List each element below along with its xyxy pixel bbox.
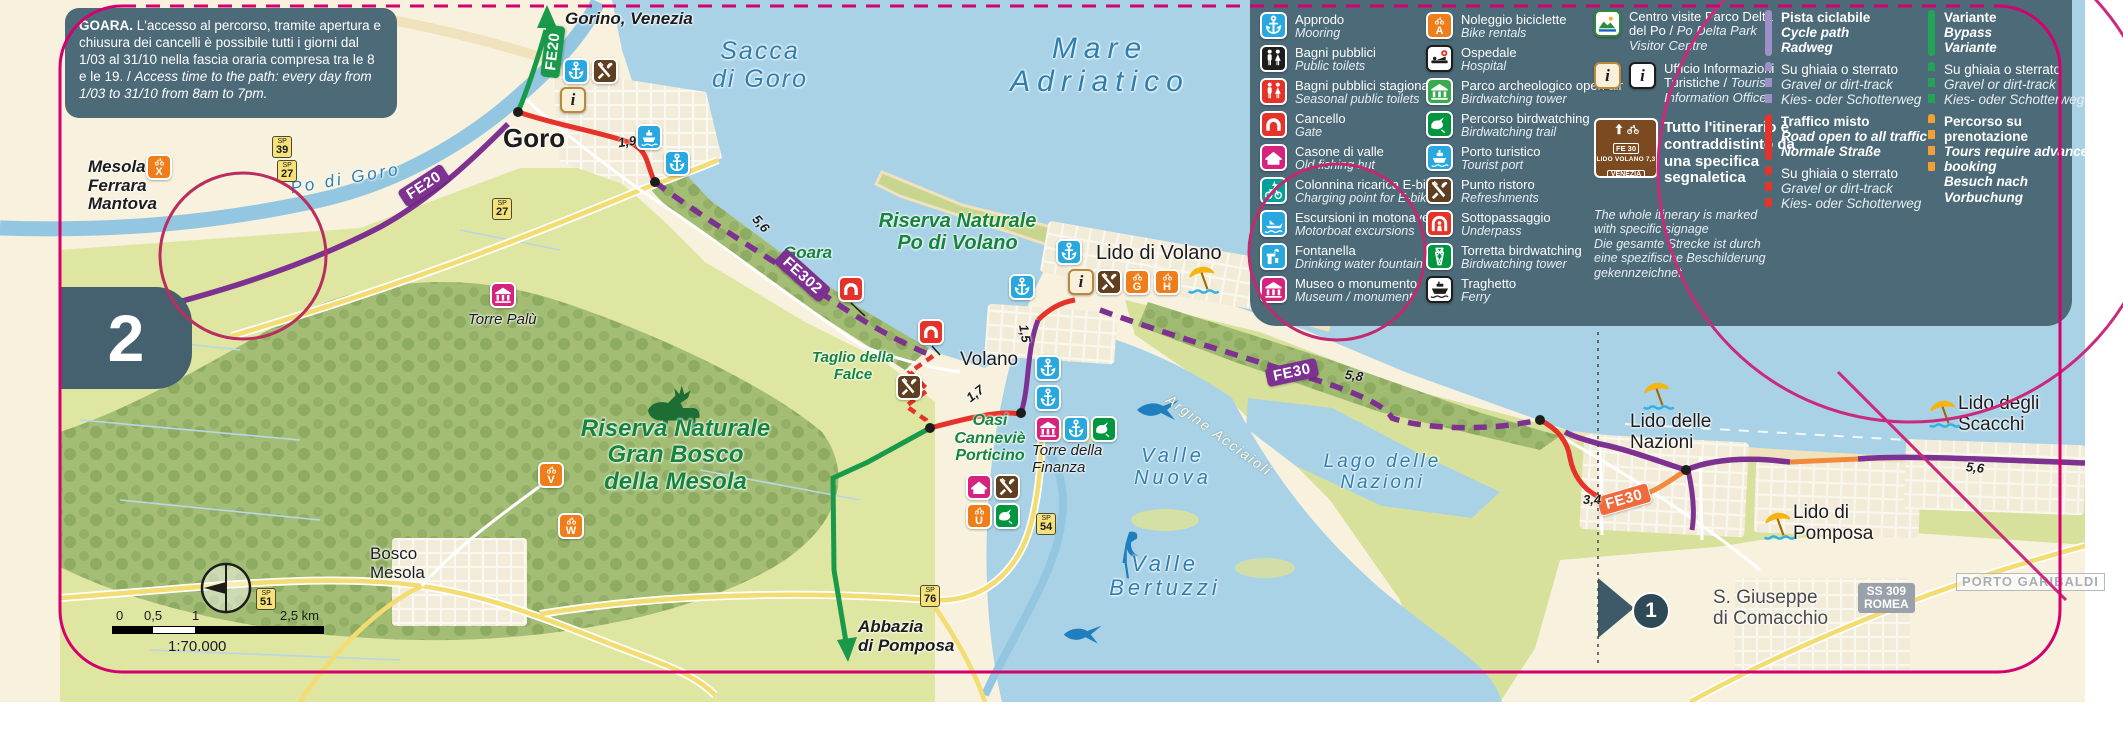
scale-tick: 0,5 xyxy=(144,608,162,623)
road-badge-sp76: SP76 xyxy=(920,585,940,607)
info-icon: i xyxy=(1629,62,1656,89)
road-badge-sp27b: SP27 xyxy=(277,160,297,182)
legend-route-mixed-traffic: Traffico mistoRoad open to all trafficNo… xyxy=(1781,114,1933,159)
bike-marker-g-icon: G xyxy=(1124,269,1150,295)
mooring-icon xyxy=(664,150,690,176)
road-badge-sp39: SP39 xyxy=(272,136,292,158)
label-s-giuseppe: S. Giuseppe di Comacchio xyxy=(1713,588,1828,630)
label-oasi-cannevie: Oasi Canneviè Porticino xyxy=(950,412,1030,465)
label-volano: Volano xyxy=(960,350,1018,371)
toilets-icon xyxy=(1260,78,1287,105)
gate-icon xyxy=(918,319,944,345)
mooring-icon xyxy=(1056,239,1082,265)
legend-item-visitor-centre: Centro visite Parco Delta del Po / Po De… xyxy=(1594,10,1787,53)
legend-route-booking: Percorso su prenotazioneTours require ad… xyxy=(1944,114,2096,205)
label-riserva-gran-bosco: Riserva Naturale Gran Bosco della Mesola xyxy=(578,416,773,495)
museum-icon xyxy=(1260,276,1287,303)
road-badge-sp54: SP54 xyxy=(1036,513,1056,535)
mooring-icon xyxy=(1063,416,1089,442)
mooring-icon xyxy=(563,58,589,84)
legend-item-motonave: Escursioni in motonaveMotorboat excursio… xyxy=(1260,210,1429,238)
distance-label: 1,5 xyxy=(1016,323,1034,343)
itinerary-sign: FE 30 LIDO VOLANO 7,3 VENEZIA xyxy=(1594,118,1658,178)
bike-marker-h-icon: H xyxy=(1154,269,1180,295)
route-swatch-gravel-purple xyxy=(1765,62,1772,106)
scale-tick: 2,5 km xyxy=(280,608,319,623)
map-page: Gorino, Venezia Goro Mesola Ferrara Mant… xyxy=(0,0,2123,737)
road-badge-ss309: SS 309 ROMEA xyxy=(1858,583,1915,613)
toilets-icon xyxy=(1260,45,1287,72)
museum-icon xyxy=(490,282,516,308)
road-badge-sp51: SP51 xyxy=(256,588,276,610)
label-torre-palu: Torre Palù xyxy=(468,312,537,329)
label-porto-garibaldi: PORTO GARIBALDI xyxy=(1956,573,2105,591)
legend-route-gravel-green: Su ghiaia o sterratoGravel or dirt-track… xyxy=(1944,62,2096,107)
refreshments-icon xyxy=(896,374,922,400)
arrow-up-icon xyxy=(1612,122,1626,136)
motorboat-icon xyxy=(1260,210,1287,237)
legend-route-cycle-path: Pista ciclabileCycle pathRadweg xyxy=(1781,10,1933,55)
legend-item-casone: Casone di valleOld fishing hut xyxy=(1260,144,1384,172)
label-lido-di-pomposa: Lido di Pomposa xyxy=(1793,503,1873,545)
fountain-icon xyxy=(1260,243,1287,270)
route-swatch-gravel-green xyxy=(1928,62,1935,106)
ebike-icon xyxy=(1260,177,1287,204)
refreshments-icon xyxy=(592,58,618,84)
legend-item-fontanella: FontanellaDrinking water fountain xyxy=(1260,243,1423,271)
scale-tick: 1 xyxy=(192,608,199,623)
label-riserva-po-di-volano: Riserva Naturale Po di Volano xyxy=(850,210,1065,254)
label-lido-degli-scacchi: Lido degli Scacchi xyxy=(1958,394,2039,436)
info-box-goara: GOARA. L'accesso al percorso, tramite ap… xyxy=(65,8,397,118)
label-torre-della-finanza: Torre della Finanza xyxy=(1032,443,1102,476)
legend-item-percorso-birdwatching: Percorso birdwatchingBirdwatching trail xyxy=(1426,111,1590,139)
refreshments-icon xyxy=(994,474,1020,500)
label-abbazia-di-pomposa: Abbazia di Pomposa xyxy=(858,618,954,655)
distance-label: 5,6 xyxy=(1965,459,1985,476)
road-badge-sp27: SP27 xyxy=(492,198,512,220)
bike-marker-x-icon: X xyxy=(146,154,172,180)
label-valle-nuova: Valle Nuova xyxy=(1128,445,1218,489)
bike-marker-w-icon: W xyxy=(558,513,584,539)
stage-marker-1: 1 xyxy=(1632,592,1670,630)
scale-tick: 0 xyxy=(116,608,123,623)
hospital-icon xyxy=(1426,45,1453,72)
label-mare-adriatico: Mare Adriatico xyxy=(975,32,1225,98)
fishing-hut-icon xyxy=(966,474,992,500)
scale-ratio: 1:70.000 xyxy=(168,638,352,655)
gate-icon xyxy=(838,276,864,302)
scale-bar: 0 0,5 1 2,5 km 1:70.000 xyxy=(112,608,352,655)
scale-bar-rule xyxy=(112,626,324,634)
label-gorino-venezia: Gorino, Venezia xyxy=(565,10,693,29)
sign-destination: VENEZIA xyxy=(1607,170,1645,178)
cutlery-icon xyxy=(1426,177,1453,204)
legend-item-noleggio: A Noleggio bicicletteBike rentals xyxy=(1426,12,1567,40)
birdwatching-icon xyxy=(994,503,1020,529)
visitor-centre-icon xyxy=(1594,10,1621,37)
legend-item-bagni-pubblici: Bagni pubbliciPublic toilets xyxy=(1260,45,1376,73)
legend-route-variant: VarianteBypassVariante xyxy=(1944,10,2096,55)
mooring-icon xyxy=(1035,355,1061,381)
label-bosco-mesola: Bosco Mesola xyxy=(370,545,425,582)
beach-umbrella-icon xyxy=(1185,260,1221,296)
sign-route-number: FE 30 xyxy=(1613,143,1639,154)
panel-arrow-icon xyxy=(1598,578,1634,638)
legend-item-traghetto: TraghettoFerry xyxy=(1426,276,1516,304)
bike-rental-icon: A xyxy=(1426,12,1453,39)
hut-icon xyxy=(1260,144,1287,171)
mooring-icon xyxy=(1035,385,1061,411)
legend-item-approdo: ApprodoMooring xyxy=(1260,12,1344,40)
info-icon: i xyxy=(560,87,586,113)
compass-icon xyxy=(202,564,250,612)
info-icon: i xyxy=(1594,62,1621,89)
label-valle-bertuzzi: Valle Bertuzzi xyxy=(1085,552,1245,600)
legend-panel: ApprodoMooring Bagni pubbliciPublic toil… xyxy=(1250,0,2072,326)
label-sacca-di-goro: Sacca di Goro xyxy=(695,38,825,93)
legend-item-porto-turistico: Porto turisticoTourist port xyxy=(1426,144,1540,172)
legend-route-gravel-red: Su ghiaia o sterratoGravel or dirt-track… xyxy=(1781,166,1933,211)
underpass-icon xyxy=(1426,210,1453,237)
label-taglio-della-falce: Taglio della Falce xyxy=(808,350,898,383)
beach-umbrella-icon xyxy=(1761,506,1797,542)
tower-icon xyxy=(1426,243,1453,270)
label-lago-delle-nazioni: Lago delle Nazioni xyxy=(1315,452,1450,494)
gate-icon xyxy=(1260,111,1287,138)
bird-icon xyxy=(1426,111,1453,138)
route-swatch-mixed-traffic xyxy=(1765,114,1772,160)
beach-umbrella-icon xyxy=(1640,376,1676,412)
route-swatch-cycle-path xyxy=(1765,10,1772,56)
label-goro: Goro xyxy=(503,124,565,153)
bike-marker-v-icon: V xyxy=(538,462,564,488)
beach-umbrella-icon xyxy=(1926,394,1962,430)
distance-label: 5,8 xyxy=(1344,367,1364,384)
birdwatching-icon xyxy=(1091,416,1117,442)
legend-item-torretta: Torretta birdwatchingBirdwatching tower xyxy=(1426,243,1582,271)
info-icon: i xyxy=(1068,269,1094,295)
distance-label: 3,4 xyxy=(1583,492,1601,507)
info-box-title: GOARA. xyxy=(79,18,133,33)
legend-item-punto-ristoro: Punto ristoroRefreshments xyxy=(1426,177,1539,205)
legend-item-sottopassaggio: SottopassaggioUnderpass xyxy=(1426,210,1551,238)
museum-icon xyxy=(1035,416,1061,442)
refreshments-icon xyxy=(1096,269,1122,295)
archeo-park-icon xyxy=(1426,78,1453,105)
mooring-icon xyxy=(1009,274,1035,300)
legend-item-bagni-stagionali: Bagni pubblici stagionaliSeasonal public… xyxy=(1260,78,1434,106)
bike-marker-u-icon: U xyxy=(966,503,992,529)
legend-item-museo: Museo o monumentoMuseum / monument xyxy=(1260,276,1417,304)
ship-icon xyxy=(1426,144,1453,171)
legend-item-ospedale: OspedaleHospital xyxy=(1426,45,1517,73)
anchor-icon xyxy=(1260,12,1287,39)
route-swatch-booking xyxy=(1928,114,1935,172)
distance-label: 1,9 xyxy=(617,133,637,150)
signage-note-translations: The whole itinerary is marked with speci… xyxy=(1594,208,1772,280)
tourist-port-icon xyxy=(636,124,662,150)
legend-item-cancello: CancelloGate xyxy=(1260,111,1346,139)
legend-item-info-office: i i Ufficio Informazioni Turistiche / To… xyxy=(1594,62,1782,105)
route-swatch-variant xyxy=(1928,10,1935,56)
bike-icon xyxy=(1626,122,1640,136)
legend-item-ebike: Colonnina ricarica E-bikeCharging point … xyxy=(1260,177,1440,205)
legend-route-gravel-purple: Su ghiaia o sterratoGravel or dirt-track… xyxy=(1781,62,1933,107)
page-number-badge: 2 xyxy=(60,287,192,389)
label-lido-delle-nazioni: Lido delle Nazioni xyxy=(1630,412,1711,454)
route-swatch-gravel-red xyxy=(1765,166,1772,210)
ferry-icon xyxy=(1426,276,1453,303)
